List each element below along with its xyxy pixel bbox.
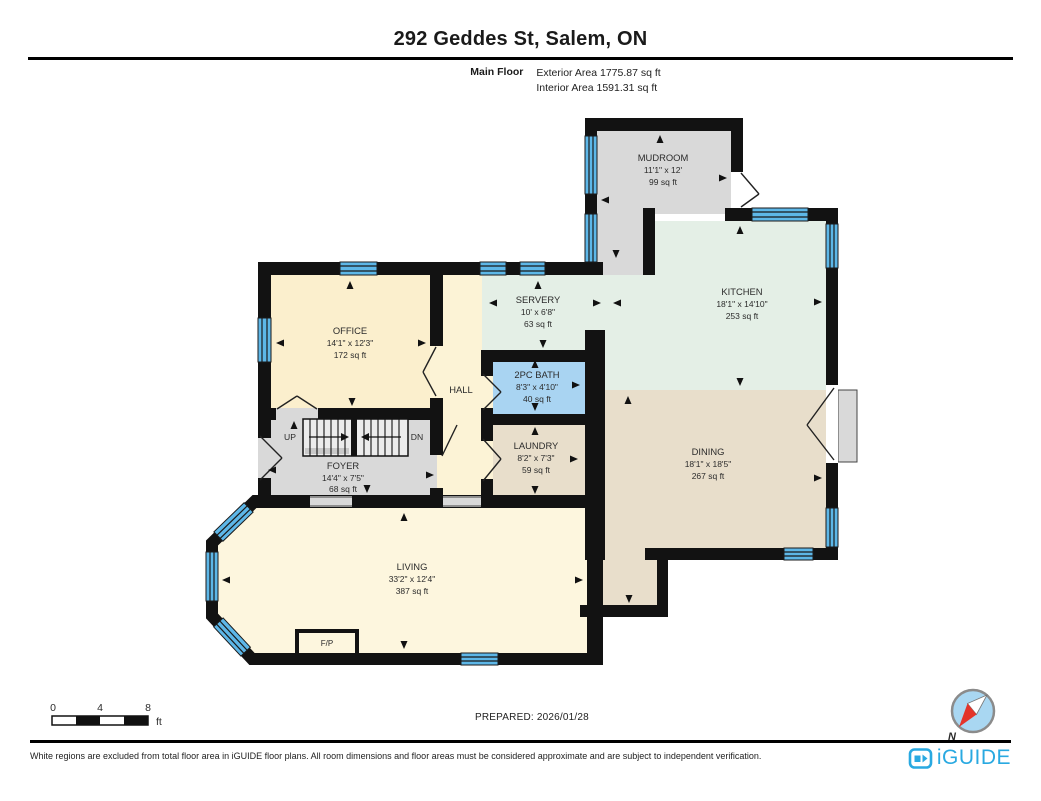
servery-area: 63 sq ft <box>524 319 553 329</box>
living-area: 387 sq ft <box>396 586 429 596</box>
window <box>480 262 506 275</box>
kitchen-dims: 18'1" x 14'10" <box>716 299 767 309</box>
living-name: LIVING <box>397 561 428 572</box>
servery-name: SERVERY <box>516 294 561 305</box>
living-dims: 33'2" x 12'4" <box>389 574 436 584</box>
foyer-dims: 14'4" x 7'5" <box>322 473 364 483</box>
office-area: 172 sq ft <box>334 350 367 360</box>
dining-area: 267 sq ft <box>692 471 725 481</box>
laundry-name: LAUNDRY <box>514 440 559 451</box>
window <box>784 548 813 560</box>
scale-bar: 0 4 8 ft <box>50 702 162 728</box>
dining-name: DINING <box>692 446 725 457</box>
laundry-dims: 8'2" x 7'3" <box>517 453 554 463</box>
dining-dims: 18'1" x 18'5" <box>685 459 732 469</box>
office-name: OFFICE <box>333 325 367 336</box>
staircase <box>303 419 408 456</box>
fireplace-label: F/P <box>321 639 333 648</box>
window <box>206 552 218 601</box>
scale-unit: ft <box>156 716 162 728</box>
window <box>585 136 597 194</box>
hall-name: HALL <box>449 384 472 395</box>
floor-plan: UP DN F/P <box>0 0 1041 801</box>
disclaimer-text: White regions are excluded from total fl… <box>30 751 761 761</box>
mudroom-name: MUDROOM <box>638 152 689 163</box>
scale-tick-4: 4 <box>97 702 103 714</box>
office-foyer-door <box>276 408 318 420</box>
window <box>520 262 545 275</box>
window <box>461 653 498 665</box>
window <box>585 214 597 262</box>
stairs-up-label: UP <box>284 432 296 442</box>
stairs-down-label: DN <box>411 432 423 442</box>
bath-area: 40 sq ft <box>523 394 552 404</box>
bath-door <box>481 376 493 408</box>
footer-divider <box>30 740 1011 743</box>
bath-dims: 8'3" x 4'10" <box>516 382 558 392</box>
room-dining <box>598 390 832 611</box>
prepared-date: PREPARED: 2026/01/28 <box>475 712 589 723</box>
mudroom-door <box>731 172 743 208</box>
bath-name: 2PC BATH <box>514 369 559 380</box>
mudroom-dims: 11'1" x 12' <box>644 165 683 175</box>
foyer-area: 68 sq ft <box>329 484 358 494</box>
window <box>258 318 271 362</box>
window <box>826 508 838 547</box>
porch-landing <box>838 390 857 462</box>
iguide-logo-text: iGUIDE <box>937 746 1011 770</box>
office-dims: 14'1" x 12'3" <box>327 338 374 348</box>
scale-tick-8: 8 <box>145 702 151 714</box>
kitchen-name: KITCHEN <box>721 286 762 297</box>
servery-dims: 10' x 6'8" <box>521 307 555 317</box>
scale-tick-0: 0 <box>50 702 56 714</box>
compass-icon <box>952 690 994 732</box>
window <box>340 262 377 275</box>
laundry-area: 59 sq ft <box>522 465 551 475</box>
window <box>826 224 838 268</box>
foyer-name: FOYER <box>327 460 360 471</box>
kitchen-area: 253 sq ft <box>726 311 759 321</box>
front-door <box>258 438 271 478</box>
iguide-logo: iGUIDE <box>908 746 1011 770</box>
iguide-logo-icon <box>908 747 933 770</box>
mudroom-area: 99 sq ft <box>649 177 678 187</box>
window <box>752 208 808 221</box>
laundry-door <box>481 441 493 479</box>
